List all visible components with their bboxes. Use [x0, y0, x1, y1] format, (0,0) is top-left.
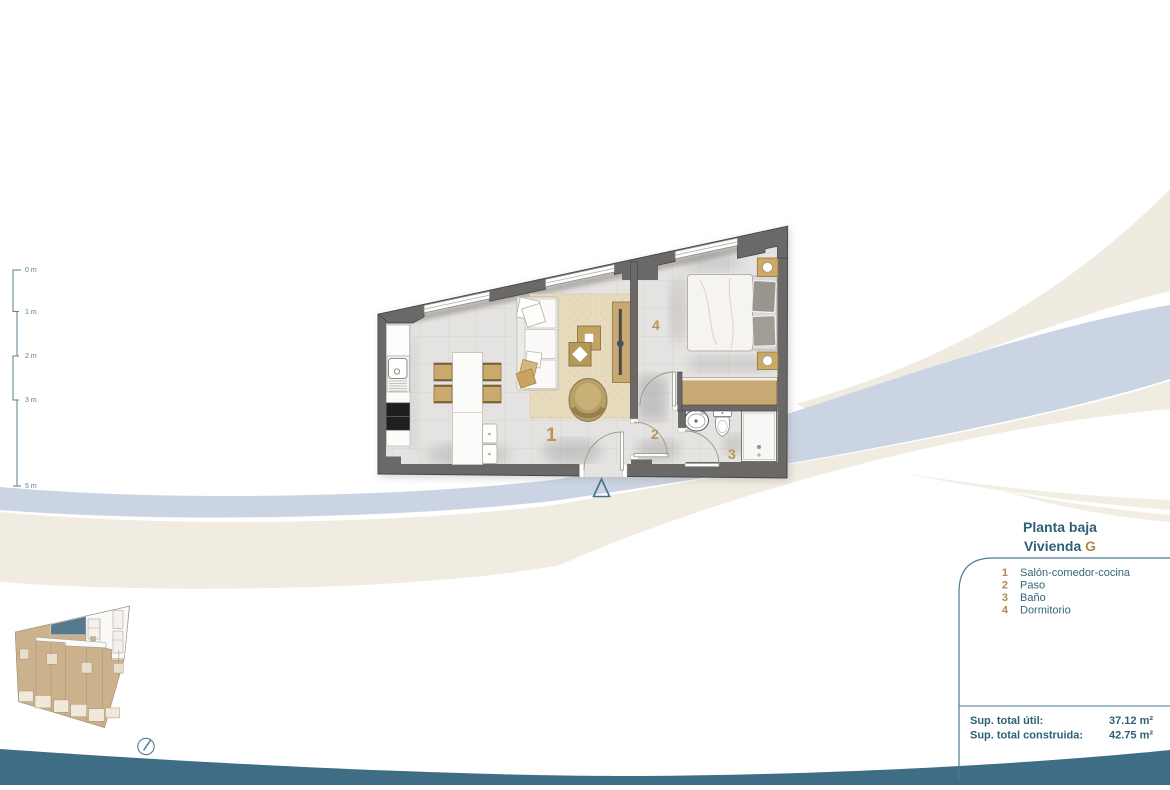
svg-text:1: 1	[546, 425, 557, 446]
svg-text:3: 3	[1002, 592, 1008, 604]
svg-text:4: 4	[1002, 605, 1009, 617]
svg-text:3: 3	[728, 446, 736, 462]
svg-text:Salón-comedor-cocina: Salón-comedor-cocina	[1020, 567, 1131, 579]
svg-text:2: 2	[1002, 580, 1008, 592]
svg-text:5 m: 5 m	[25, 483, 37, 490]
svg-text:37.12 m²: 37.12 m²	[1109, 715, 1153, 727]
svg-text:Sup. total construida:: Sup. total construida:	[970, 730, 1083, 742]
svg-text:1 m: 1 m	[25, 309, 37, 316]
svg-text:Baño: Baño	[1020, 592, 1046, 604]
svg-text:Paso: Paso	[1020, 580, 1045, 592]
svg-text:Dormitorio: Dormitorio	[1020, 605, 1071, 617]
svg-text:Planta baja: Planta baja	[1023, 519, 1097, 535]
svg-text:Vivienda G: Vivienda G	[1024, 538, 1096, 554]
svg-text:Sup. total útil:: Sup. total útil:	[970, 715, 1043, 727]
svg-text:0 m: 0 m	[25, 267, 37, 274]
svg-text:42.75 m²: 42.75 m²	[1109, 730, 1153, 742]
svg-text:3 m: 3 m	[25, 397, 37, 404]
svg-text:4: 4	[652, 317, 660, 333]
svg-text:2: 2	[651, 426, 659, 442]
svg-text:1: 1	[1002, 567, 1008, 579]
svg-text:2 m: 2 m	[25, 353, 37, 360]
